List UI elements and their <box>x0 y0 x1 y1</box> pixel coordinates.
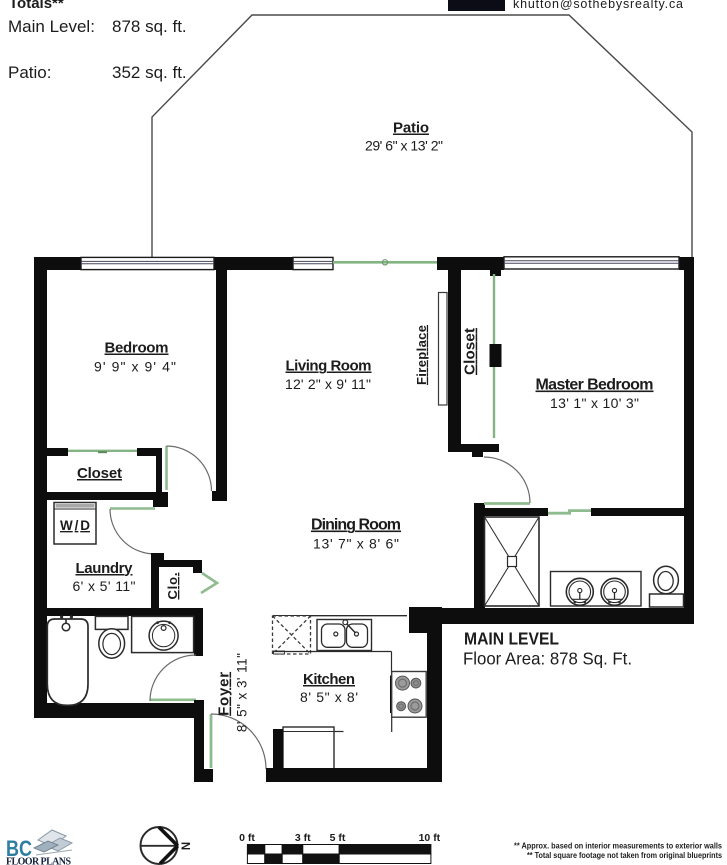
svg-text:12' 2" x 9' 11": 12' 2" x 9' 11" <box>285 376 371 392</box>
svg-text:** Total square footage not ta: ** Total square footage not taken from o… <box>527 851 722 860</box>
svg-text:Dining Room: Dining Room <box>311 517 401 534</box>
svg-text:Closet: Closet <box>77 465 122 482</box>
svg-text:0 ft: 0 ft <box>239 832 255 844</box>
svg-text:352 sq. ft.: 352 sq. ft. <box>112 63 187 82</box>
svg-text:** Approx. based on interior m: ** Approx. based on interior measurement… <box>514 842 723 851</box>
svg-text:Master Bedroom: Master Bedroom <box>536 377 654 394</box>
svg-text:Kitchen: Kitchen <box>303 671 355 688</box>
svg-text:5 ft: 5 ft <box>330 832 346 844</box>
svg-text:Floor Area: 878 Sq. Ft.: Floor Area: 878 Sq. Ft. <box>463 649 632 669</box>
svg-text:Clo.: Clo. <box>165 573 180 600</box>
svg-text:8' 5" x 8': 8' 5" x 8' <box>300 689 358 705</box>
svg-text:Fireplace: Fireplace <box>414 325 429 385</box>
svg-text:Foyer: Foyer <box>216 672 233 716</box>
svg-text:Laundry: Laundry <box>76 560 134 577</box>
svg-text:N: N <box>178 842 190 850</box>
svg-text:Living Room: Living Room <box>286 358 372 375</box>
svg-text:MAIN LEVEL: MAIN LEVEL <box>464 629 559 649</box>
svg-text:878 sq. ft.: 878 sq. ft. <box>112 17 187 36</box>
svg-text:3 ft: 3 ft <box>295 832 311 844</box>
svg-text:8' 5" x 3' 11": 8' 5" x 3' 11" <box>234 653 249 732</box>
svg-text:W/D: W/D <box>60 518 90 533</box>
svg-text:Patio: Patio <box>393 120 429 137</box>
svg-text:Bedroom: Bedroom <box>105 340 169 357</box>
svg-text:Totals**: Totals** <box>9 0 64 12</box>
svg-text:6' x 5' 11": 6' x 5' 11" <box>73 578 136 594</box>
svg-text:13' 1" x 10' 3": 13' 1" x 10' 3" <box>550 395 639 411</box>
svg-text:9' 9" x 9' 4": 9' 9" x 9' 4" <box>94 359 176 375</box>
svg-text:FLOOR PLANS: FLOOR PLANS <box>6 857 71 865</box>
svg-text:Patio:: Patio: <box>8 63 51 82</box>
svg-text:10 ft: 10 ft <box>419 832 441 844</box>
svg-text:Main Level:: Main Level: <box>8 17 95 36</box>
svg-text:khutton@sothebysrealty.ca: khutton@sothebysrealty.ca <box>513 0 683 11</box>
svg-text:29' 6" x 13' 2": 29' 6" x 13' 2" <box>365 138 443 154</box>
svg-text:Closet: Closet <box>462 328 479 375</box>
svg-text:13' 7" x 8' 6": 13' 7" x 8' 6" <box>313 536 399 552</box>
